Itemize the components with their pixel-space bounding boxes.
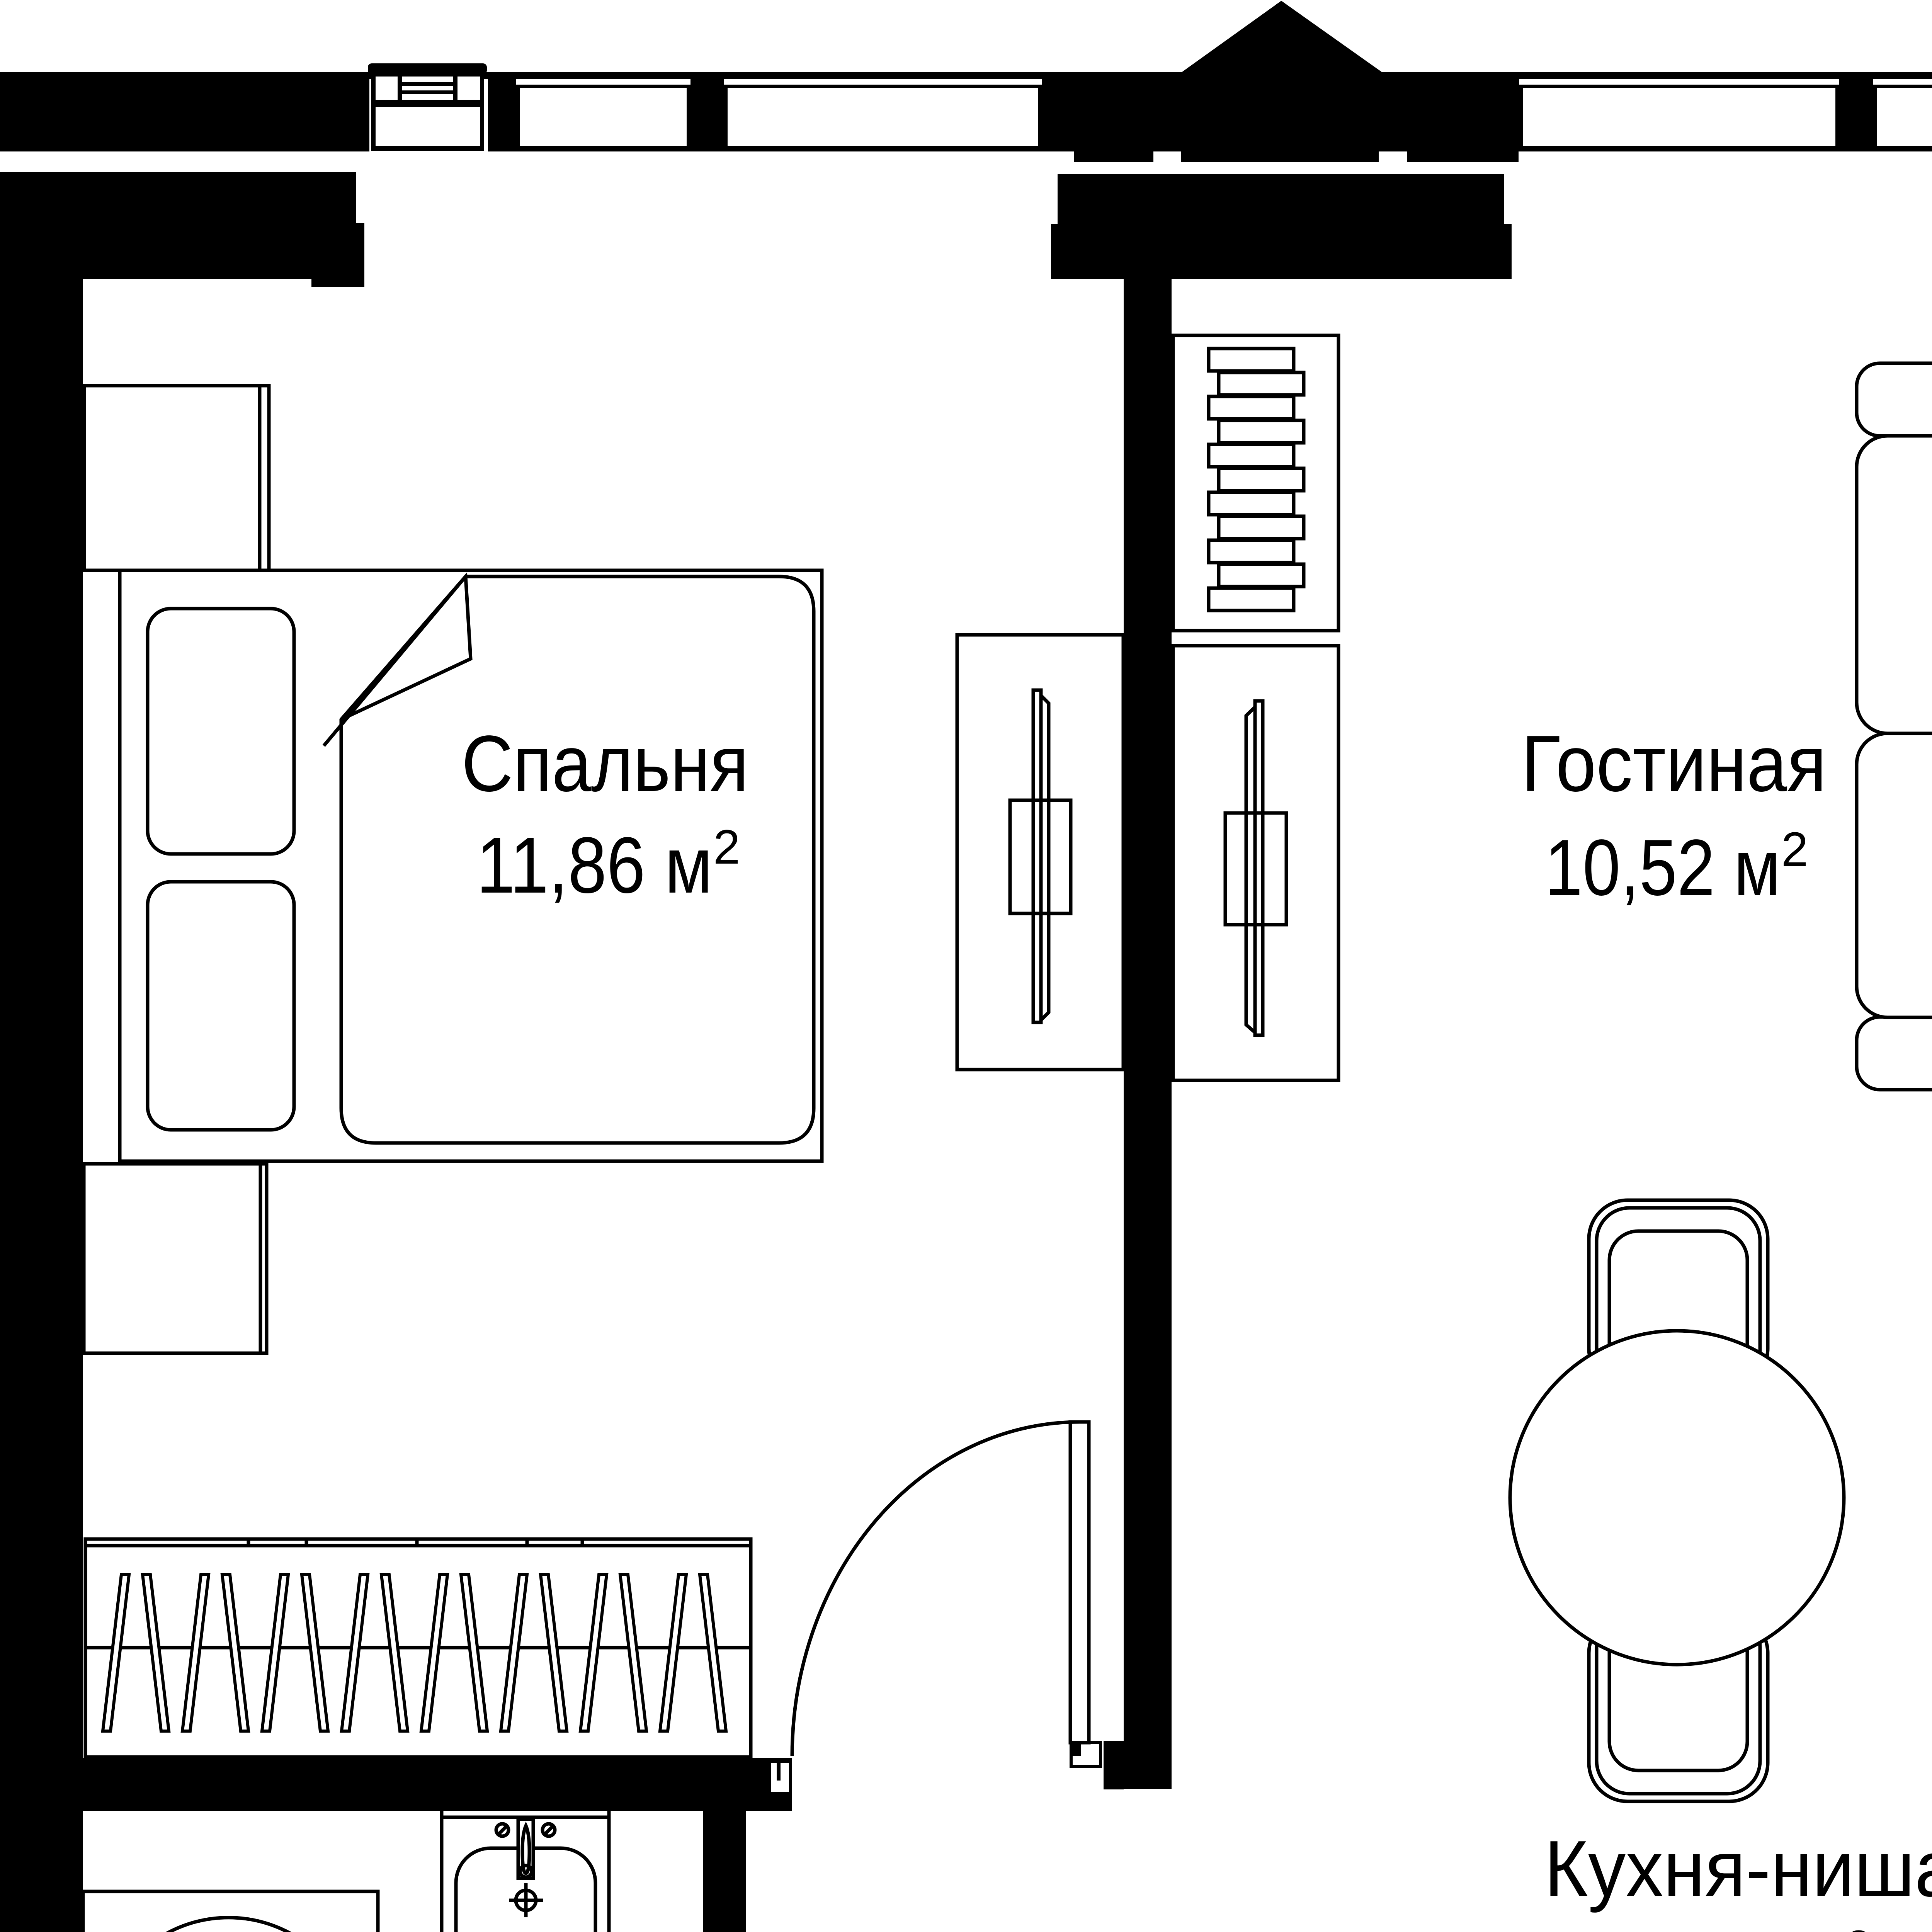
svg-text:2: 2 [1781,823,1808,876]
svg-text:2: 2 [1845,1921,1872,1932]
svg-text:11,86 м: 11,86 м [476,821,713,910]
svg-text:10,52 м: 10,52 м [1545,823,1781,912]
svg-text:5,29 м: 5,29 м [1634,1921,1844,1932]
svg-text:Гостиная: Гостиная [1521,719,1827,808]
svg-text:Спальня: Спальня [462,719,749,808]
svg-text:Кухня-ниша: Кухня-ниша [1544,1824,1932,1913]
svg-text:2: 2 [713,820,740,874]
